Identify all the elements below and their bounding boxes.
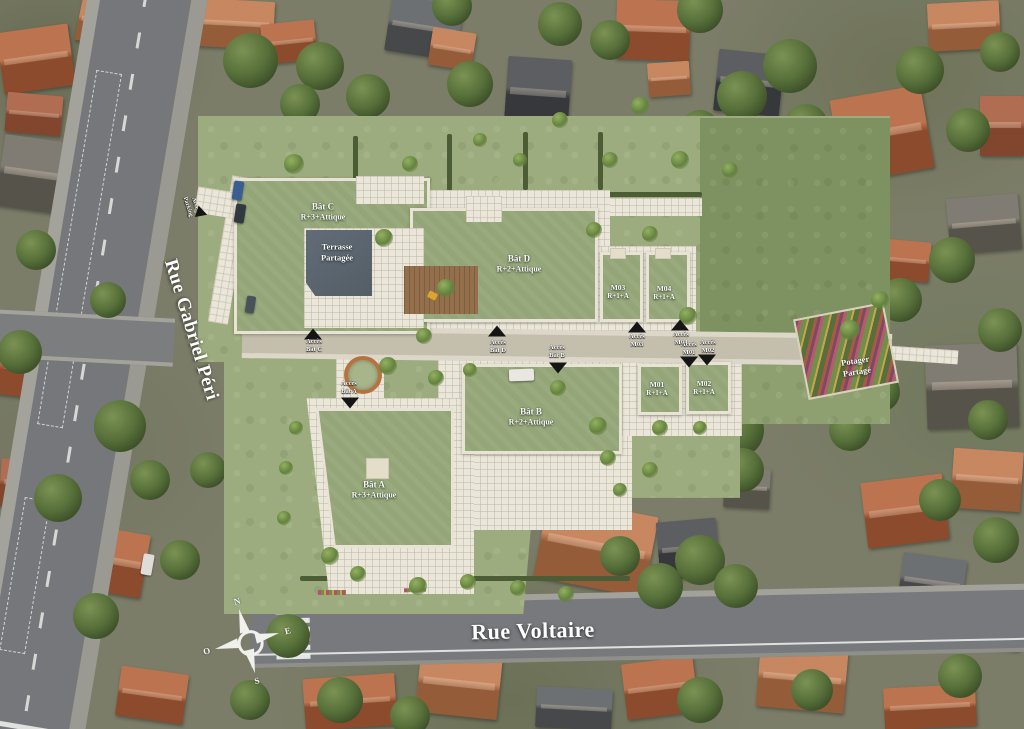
label-m04: M04 R+1+A (653, 284, 675, 302)
landscape-tree (722, 162, 738, 178)
acces-bat-d-arrow (488, 326, 506, 337)
landscape-tree (321, 547, 339, 565)
landscape-tree (693, 421, 707, 435)
landscape-tree (613, 483, 627, 497)
label-m03: M03 R+1+A (607, 283, 629, 301)
tree (763, 39, 817, 93)
m01-floors: R+1+A (646, 389, 668, 397)
tree (980, 32, 1020, 72)
label-bat-b: Bât B R+2+Attique (509, 407, 554, 428)
car (509, 369, 534, 382)
tree (968, 400, 1008, 440)
label-bat-c: Bât C R+3+Attique (301, 202, 346, 223)
tree (346, 74, 390, 118)
landscape-tree (284, 154, 304, 174)
label-m02: M02 R+1+A (693, 379, 715, 397)
acces-bat-a-label: AccèsBât A (341, 380, 357, 396)
landscape-tree (289, 421, 303, 435)
m03-floors: R+1+A (607, 292, 629, 300)
acces-m01-label: AccèsM01 (681, 341, 697, 357)
acces-m04-arrow (671, 320, 689, 331)
bat-d-floors: R+2+Attique (497, 265, 542, 275)
hedge (447, 134, 452, 192)
tree (978, 308, 1022, 352)
tree (390, 696, 430, 729)
bat-c-roof-step (356, 176, 424, 204)
acces-m02-arrow (698, 355, 716, 366)
bat-a-name: Bât A (352, 480, 397, 491)
landscape-tree (642, 226, 658, 242)
bat-b-floors: R+2+Attique (509, 418, 554, 428)
tree (230, 680, 270, 720)
m03-name: M03 (607, 283, 629, 292)
tree (296, 42, 344, 90)
tree (160, 540, 200, 580)
house-roof (535, 686, 613, 729)
potager-partage-plots (793, 302, 899, 400)
label-potager-partage: Potager Partagé (840, 354, 871, 379)
tree (223, 33, 278, 88)
tree (590, 20, 630, 60)
bat-a-roof-access (366, 458, 389, 479)
landscape-tree (375, 229, 393, 247)
label-terrasse-partagee: Terrasse Partagée (321, 242, 353, 263)
house-roof (4, 92, 63, 137)
acces-m03-arrow (628, 322, 646, 333)
tree (90, 282, 126, 318)
landscape-tree (586, 222, 602, 238)
tree (190, 452, 226, 488)
compass-n-label: N (233, 596, 242, 607)
label-bat-d: Bât D R+2+Attique (497, 254, 542, 275)
tree (946, 108, 990, 152)
m04-entry (655, 248, 671, 259)
landscape-tree (279, 461, 293, 475)
acces-m01-arrow (680, 357, 698, 368)
bat-b-name: Bât B (509, 407, 554, 418)
landscape-tree (871, 291, 889, 309)
acces-bat-d-label: AccèsBât D (490, 339, 506, 355)
bat-d-name: Bât D (497, 254, 542, 265)
landscape-tree (600, 450, 616, 466)
tree (717, 71, 767, 121)
tree (973, 517, 1019, 563)
m02-name: M02 (693, 379, 715, 388)
landscape-tree (277, 511, 291, 525)
tree (447, 61, 493, 107)
landscape-tree (513, 153, 527, 167)
bat-a-floors: R+3+Attique (352, 491, 397, 501)
label-bat-a: Bât A R+3+Attique (352, 480, 397, 501)
landscape-tree (437, 279, 455, 297)
acces-bat-c-label: AccèsBât C (306, 338, 322, 354)
tree (919, 479, 961, 521)
landscape-tree (552, 112, 568, 128)
m02-floors: R+1+A (693, 388, 715, 396)
m04-floors: R+1+A (653, 293, 675, 301)
masterplan-aerial-view: Bât C R+3+Attique Bât D R+2+Attique M03 … (0, 0, 1024, 729)
house-roof (950, 448, 1024, 513)
m01-name: M01 (646, 380, 668, 389)
tree (73, 593, 119, 639)
landscape-tree (379, 357, 397, 375)
house-roof (115, 666, 189, 725)
landscape-tree (602, 152, 618, 168)
tree (677, 677, 723, 723)
tree (130, 460, 170, 500)
m04-name: M04 (653, 284, 675, 293)
bat-d-stair-core (466, 196, 502, 222)
landscape-tree (510, 580, 526, 596)
landscape-tree (428, 370, 444, 386)
tree (600, 536, 640, 576)
tree (538, 2, 582, 46)
bat-c-name: Bât C (301, 202, 346, 213)
landscape-tree (550, 380, 566, 396)
tree (34, 474, 82, 522)
landscape-tree (652, 420, 668, 436)
tree (938, 654, 982, 698)
compass-west-point (214, 638, 240, 654)
landscape-tree (402, 156, 418, 172)
acces-bat-b-label: AccèsBât B (549, 344, 565, 360)
bat-c-floors: R+3+Attique (301, 213, 346, 223)
tree (791, 669, 833, 711)
car (140, 553, 154, 576)
landscape-tree (558, 586, 574, 602)
landscape-tree (409, 577, 427, 595)
house-roof (0, 23, 76, 94)
landscape-tree (671, 151, 689, 169)
tree (317, 677, 363, 723)
road-edge-line (250, 637, 1024, 656)
landscape-tree (463, 363, 477, 377)
landscape-tree (350, 566, 366, 582)
label-m01: M01 R+1+A (646, 380, 668, 398)
acces-m02-label: AccèsM02 (700, 339, 716, 355)
tree (94, 400, 146, 452)
acces-m03-label: AccèsM03 (629, 333, 645, 349)
landscape-tree (840, 320, 860, 340)
acces-bat-a-arrow (341, 398, 359, 409)
acces-bat-b-arrow (549, 363, 567, 374)
landscape-tree (589, 417, 607, 435)
tree (714, 564, 758, 608)
landscape-tree (460, 574, 476, 590)
landscape-tree (631, 97, 649, 115)
landscape-tree (416, 328, 432, 344)
house-roof (647, 61, 691, 98)
tree (929, 237, 975, 283)
m03-entry (610, 248, 626, 259)
parking-bay-marking (0, 497, 51, 654)
crosswalk (0, 720, 54, 729)
tree (896, 46, 944, 94)
tree (16, 230, 56, 270)
landscape-tree (473, 133, 487, 147)
landscape-tree (642, 462, 658, 478)
street-name-rue-voltaire: Rue Voltaire (471, 617, 595, 646)
tree (0, 330, 42, 374)
terrasse-canopy (306, 230, 372, 296)
flower-bed (318, 590, 346, 595)
